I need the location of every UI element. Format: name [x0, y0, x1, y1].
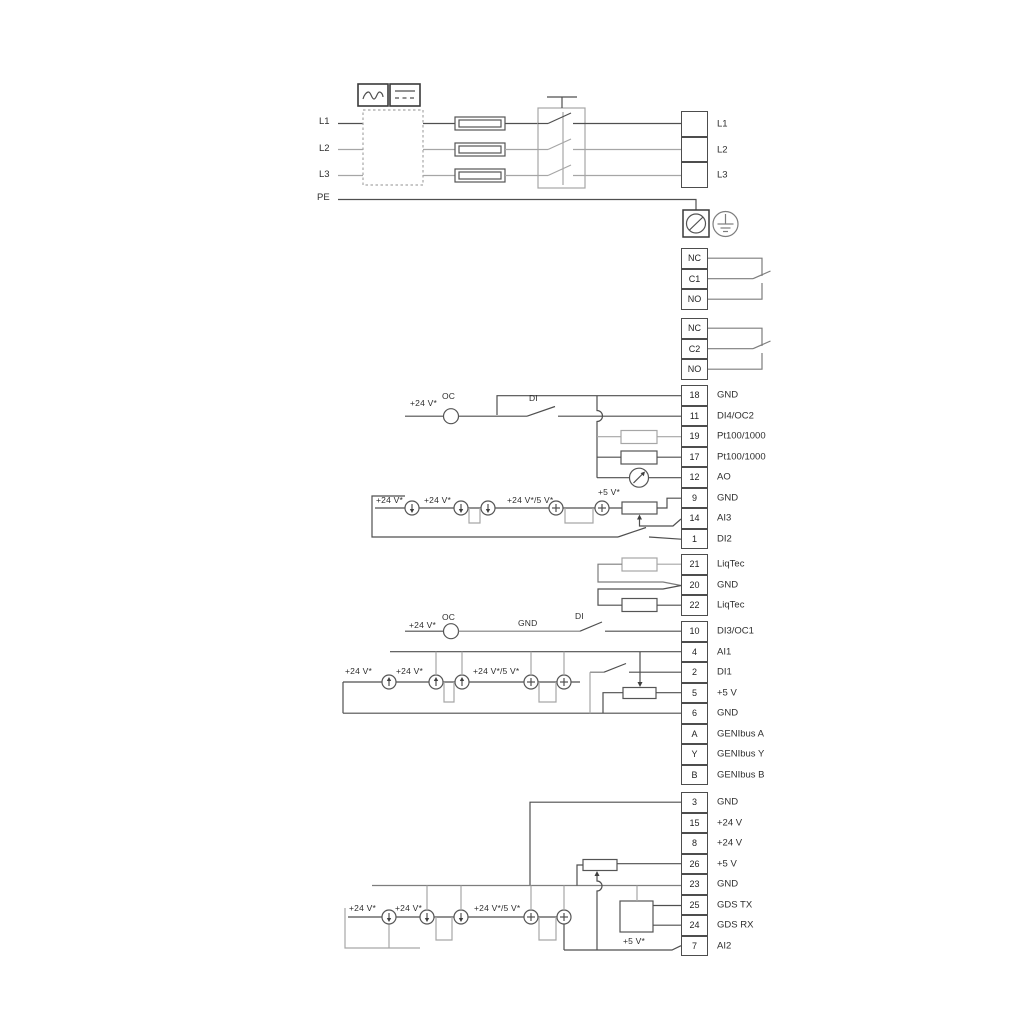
terminal-cell: 19 — [681, 426, 708, 447]
terminal-label: Pt100/1000 — [717, 431, 766, 442]
terminal-row-12: 12AO — [681, 467, 708, 488]
terminal-label: GND — [717, 579, 738, 590]
pe-label: PE — [317, 192, 330, 203]
terminal-cell: 18 — [681, 385, 708, 406]
di3-oc1-circuit — [405, 622, 681, 639]
phase-label-l2: L2 — [319, 143, 330, 154]
terminal-cell: NO — [681, 289, 708, 310]
terminal-row-6: 6GND — [681, 703, 708, 724]
terminal-row-b: BGENIbus B — [681, 765, 708, 786]
potentiometer-icon — [622, 502, 657, 520]
terminal-row-c1: C1 — [681, 269, 708, 290]
terminal-cell: 4 — [681, 642, 708, 663]
terminal-row-10: 10DI3/OC1 — [681, 621, 708, 642]
terminal-label: LiqTec — [717, 559, 744, 570]
current-source-up-icon — [382, 675, 396, 689]
terminal-label: GND — [717, 879, 738, 890]
terminal-label: GENIbus B — [717, 769, 765, 780]
terminal-row-20: 20GND — [681, 575, 708, 596]
pt100-resistor-icon — [621, 451, 657, 464]
ai1-di1-options-circuit — [343, 652, 681, 714]
open-collector-icon — [444, 409, 459, 424]
emc-filter-box — [363, 110, 423, 185]
terminal-label: +5 V — [717, 687, 737, 698]
label-plus24v: +24 V* — [396, 666, 423, 676]
terminal-cell: 9 — [681, 488, 708, 509]
terminal-label: GENIbus Y — [717, 749, 764, 760]
terminal-row-nc: NC — [681, 318, 708, 339]
liqtec-terminal-block: 21LiqTec 20GND 22LiqTec — [681, 554, 708, 616]
current-source-down-icon — [454, 910, 468, 924]
terminal-cell: 3 — [681, 792, 708, 813]
terminal-cell: Y — [681, 744, 708, 765]
label-plus5v: +5 V* — [598, 487, 620, 497]
label-plus5v: +5 V* — [623, 936, 645, 946]
current-source-down-icon — [382, 910, 396, 924]
potentiometer-icon — [623, 688, 656, 699]
terminal-cell: B — [681, 765, 708, 786]
terminal-row-17: 17Pt100/1000 — [681, 447, 708, 468]
di4-oc2-circuit — [405, 396, 681, 488]
terminal-row-c2: C2 — [681, 339, 708, 360]
label-plus24v: +24 V* — [424, 495, 451, 505]
terminal-label: L3 — [717, 170, 728, 181]
wiring-diagram-svg — [0, 0, 1024, 1024]
fuse-icon — [455, 169, 505, 182]
terminal-row-19: 19Pt100/1000 — [681, 426, 708, 447]
voltage-source-icon — [524, 675, 538, 689]
terminal-row-a: AGENIbus A — [681, 724, 708, 745]
label-plus24v: +24 V* — [395, 903, 422, 913]
liqtec-resistor-icon — [622, 599, 657, 612]
potentiometer-icon — [583, 860, 617, 877]
terminal-cell: 6 — [681, 703, 708, 724]
relay2-contact-icon — [708, 328, 771, 369]
terminal-cell: 26 — [681, 854, 708, 875]
io3-terminal-block: 3GND 15+24 V 8+24 V 26+5 V 23GND 25GDS T… — [681, 792, 708, 956]
terminal-row-2: 2DI1 — [681, 662, 708, 683]
terminal-label: GND — [717, 708, 738, 719]
terminal-row-l3: L3 — [681, 162, 708, 188]
io1-terminal-block: 18GND 11DI4/OC2 19Pt100/1000 17Pt100/100… — [681, 385, 708, 549]
fuse-icon — [455, 143, 505, 156]
terminal-label: +24 V — [717, 838, 742, 849]
label-plus24v-5v: +24 V*/5 V* — [507, 495, 553, 505]
label-plus24v: +24 V* — [349, 903, 376, 913]
terminal-row-no: NO — [681, 359, 708, 380]
liqtec-sensor-circuit — [598, 558, 681, 612]
phase-label-l1: L1 — [319, 116, 330, 127]
terminal-label: GDS TX — [717, 899, 752, 910]
fuse-icon — [455, 117, 505, 130]
voltage-source-icon — [557, 675, 571, 689]
label-plus24v: +24 V* — [409, 620, 436, 630]
mains-terminal-block: L1 L2 L3 — [681, 111, 708, 188]
current-source-down-icon — [405, 501, 419, 515]
label-gnd: GND — [518, 618, 538, 628]
terminal-label: L2 — [717, 144, 728, 155]
terminal-cell: 22 — [681, 595, 708, 616]
terminal-cell: 20 — [681, 575, 708, 596]
terminal-cell: C2 — [681, 339, 708, 360]
terminal-row-15: 15+24 V — [681, 813, 708, 834]
terminal-label: +5 V — [717, 858, 737, 869]
terminal-row-24: 24GDS RX — [681, 915, 708, 936]
voltage-source-icon — [524, 910, 538, 924]
label-oc: OC — [442, 391, 455, 401]
terminal-row-11: 11DI4/OC2 — [681, 406, 708, 427]
voltage-source-icon — [557, 910, 571, 924]
terminal-label: Pt100/1000 — [717, 451, 766, 462]
terminal-cell: 5 — [681, 683, 708, 704]
terminal-cell: 7 — [681, 936, 708, 957]
earth-ground-icon — [713, 212, 738, 237]
terminal-row-21: 21LiqTec — [681, 554, 708, 575]
terminal-row-23: 23GND — [681, 874, 708, 895]
terminal-label: AI2 — [717, 940, 731, 951]
terminal-cell: 1 — [681, 529, 708, 550]
terminal-label: GND — [717, 797, 738, 808]
terminal-label: DI3/OC1 — [717, 626, 754, 637]
terminal-row-9: 9GND — [681, 488, 708, 509]
terminal-cell: 25 — [681, 895, 708, 916]
terminal-row-8: 8+24 V — [681, 833, 708, 854]
io2-terminal-block: 10DI3/OC1 4AI1 2DI1 5+5 V 6GND AGENIbus … — [681, 621, 708, 785]
terminal-cell: NC — [681, 248, 708, 269]
terminal-row-l2: L2 — [681, 137, 708, 163]
ai2-gds-options-circuit — [345, 802, 681, 950]
terminal-label: L1 — [717, 118, 728, 129]
label-plus24v: +24 V* — [376, 495, 403, 505]
screw-terminal-icon — [683, 210, 709, 237]
terminal-row-nc: NC — [681, 248, 708, 269]
terminal-cell: 10 — [681, 621, 708, 642]
label-plus24v: +24 V* — [410, 398, 437, 408]
current-source-down-icon — [454, 501, 468, 515]
label-plus24v-5v: +24 V*/5 V* — [473, 666, 519, 676]
terminal-label: +24 V — [717, 817, 742, 828]
terminal-cell — [681, 111, 708, 137]
terminal-label: AI3 — [717, 513, 731, 524]
terminal-row-22: 22LiqTec — [681, 595, 708, 616]
terminal-cell: NC — [681, 318, 708, 339]
terminal-row-25: 25GDS TX — [681, 895, 708, 916]
terminal-row-26: 26+5 V — [681, 854, 708, 875]
power-input-section — [338, 84, 738, 237]
terminal-label: LiqTec — [717, 600, 744, 611]
terminal-cell: 15 — [681, 813, 708, 834]
terminal-cell: 17 — [681, 447, 708, 468]
terminal-cell: 2 — [681, 662, 708, 683]
terminal-row-l1: L1 — [681, 111, 708, 137]
terminal-row-no: NO — [681, 289, 708, 310]
main-switch-icon — [538, 97, 585, 188]
terminal-cell: 12 — [681, 467, 708, 488]
open-collector-icon — [444, 624, 459, 639]
terminal-cell — [681, 137, 708, 163]
analog-output-meter-icon — [630, 468, 649, 487]
terminal-label: AI1 — [717, 646, 731, 657]
label-di: DI — [529, 393, 538, 403]
liqtec-resistor-icon — [622, 558, 657, 571]
terminal-row-1: 1DI2 — [681, 529, 708, 550]
relay1-terminal-block: NC C1 NO — [681, 248, 708, 310]
terminal-row-14: 14AI3 — [681, 508, 708, 529]
current-source-down-icon — [481, 501, 495, 515]
terminal-cell: A — [681, 724, 708, 745]
terminal-cell: 14 — [681, 508, 708, 529]
relay1-contact-icon — [708, 258, 771, 299]
label-plus24v-5v: +24 V*/5 V* — [474, 903, 520, 913]
relay2-terminal-block: NC C2 NO — [681, 318, 708, 380]
terminal-row-5: 5+5 V — [681, 683, 708, 704]
terminal-label: DI4/OC2 — [717, 410, 754, 421]
gds-sensor-box — [620, 901, 653, 932]
pt100-resistor-icon — [621, 431, 657, 444]
terminal-cell: NO — [681, 359, 708, 380]
current-source-up-icon — [429, 675, 443, 689]
terminal-row-18: 18GND — [681, 385, 708, 406]
terminal-row-4: 4AI1 — [681, 642, 708, 663]
dc-symbol-icon — [390, 84, 420, 106]
label-di: DI — [575, 611, 584, 621]
current-source-up-icon — [455, 675, 469, 689]
current-source-down-icon — [420, 910, 434, 924]
terminal-cell: C1 — [681, 269, 708, 290]
terminal-label: GENIbus A — [717, 728, 764, 739]
label-oc: OC — [442, 612, 455, 622]
terminal-label: GND — [717, 390, 738, 401]
terminal-cell: 8 — [681, 833, 708, 854]
terminal-row-3: 3GND — [681, 792, 708, 813]
terminal-label: GDS RX — [717, 920, 753, 931]
terminal-cell: 24 — [681, 915, 708, 936]
terminal-row-7: 7AI2 — [681, 936, 708, 957]
wiring-diagram-page: L1 L2 L3 PE +24 V* OC DI +24 V* +24 V* +… — [0, 0, 1024, 1024]
terminal-label: DI2 — [717, 533, 732, 544]
voltage-source-icon — [595, 501, 609, 515]
ac-symbol-icon — [358, 84, 388, 106]
terminal-label: GND — [717, 492, 738, 503]
terminal-label: AO — [717, 472, 731, 483]
terminal-label: DI1 — [717, 667, 732, 678]
terminal-cell: 11 — [681, 406, 708, 427]
label-plus24v: +24 V* — [345, 666, 372, 676]
terminal-cell — [681, 162, 708, 188]
terminal-cell: 21 — [681, 554, 708, 575]
terminal-row-y: YGENIbus Y — [681, 744, 708, 765]
phase-label-l3: L3 — [319, 169, 330, 180]
terminal-cell: 23 — [681, 874, 708, 895]
